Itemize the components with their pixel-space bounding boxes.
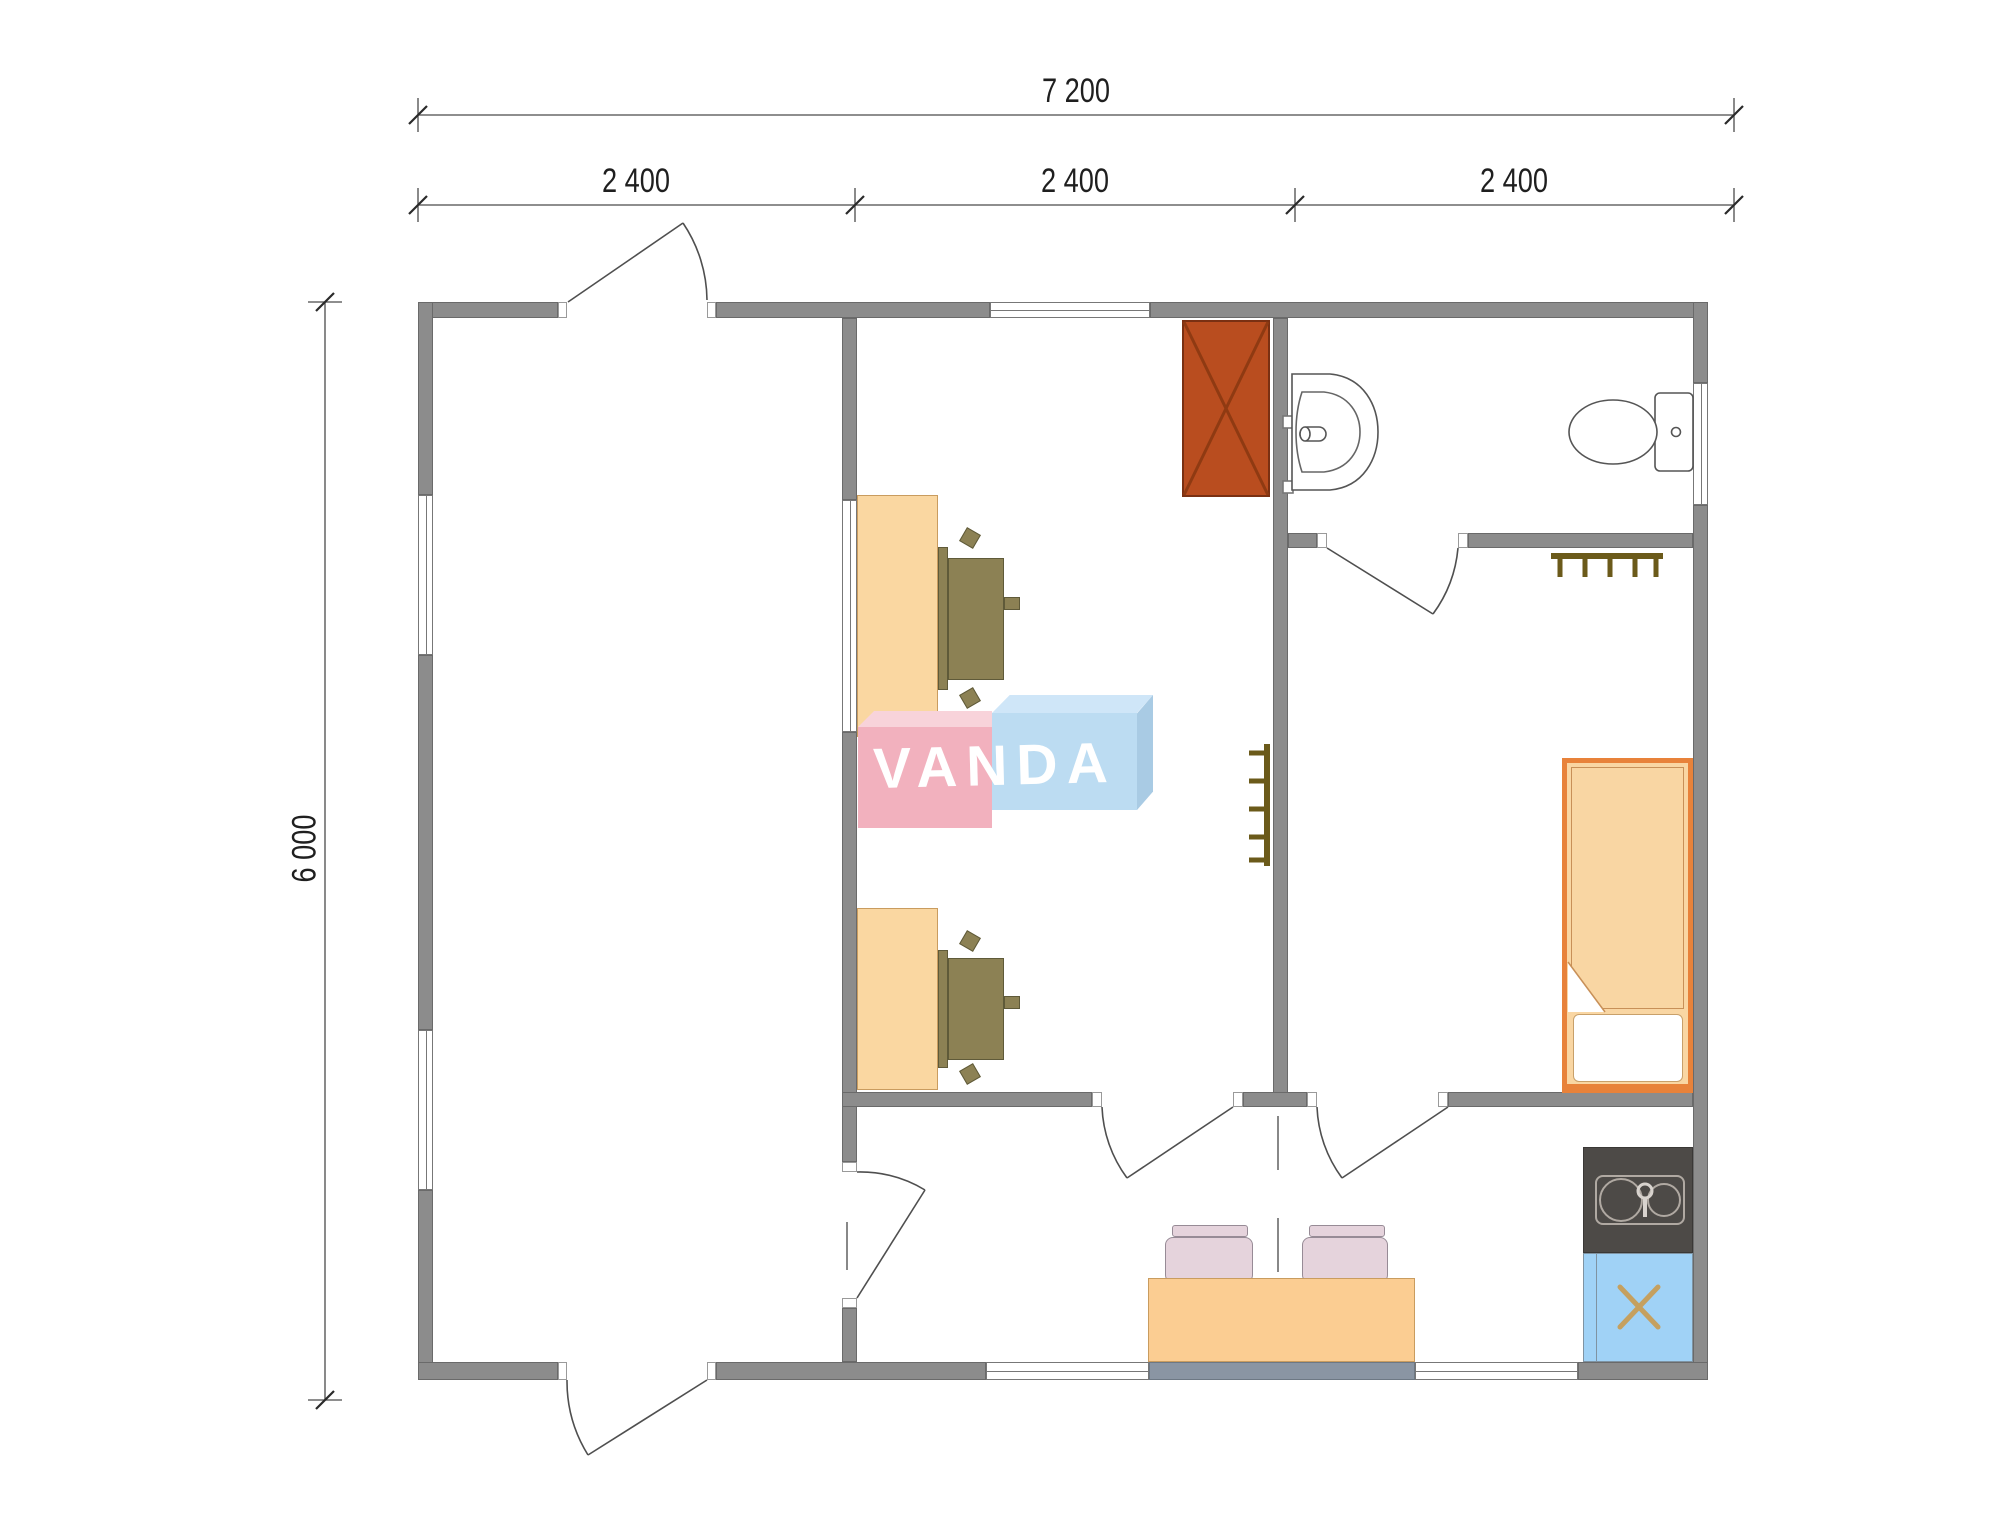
opening-center-lines xyxy=(847,1116,1278,1272)
dimension-lines xyxy=(308,98,1734,1400)
plan-overlay xyxy=(0,0,2000,1524)
dim-segment-1: 2 400 xyxy=(556,162,716,201)
door-leaf xyxy=(1127,1107,1233,1178)
exterior-door-top xyxy=(568,223,707,302)
door-hall-to-entry xyxy=(857,1172,925,1298)
door-swing-arc xyxy=(1102,1107,1127,1178)
door-leaf xyxy=(857,1190,925,1298)
dim-total-width: 7 200 xyxy=(996,72,1156,111)
exterior-door-bottom xyxy=(567,1380,707,1455)
door-swing-arc xyxy=(683,223,707,300)
door-leaf xyxy=(1327,548,1433,614)
door-leaf xyxy=(588,1380,707,1455)
floor-plan-canvas: VANDA xyxy=(0,0,2000,1524)
wardrobe-cross-icon xyxy=(1184,322,1268,495)
door-office-to-entry xyxy=(1102,1107,1233,1178)
bed-fold-line xyxy=(1568,962,1605,1012)
dim-total-height: 6 000 xyxy=(286,793,325,905)
door-bedroom-to-entry xyxy=(1317,1107,1448,1178)
door-swing-arc xyxy=(1433,548,1458,614)
dim-segment-3: 2 400 xyxy=(1434,162,1594,201)
bathroom-sink-icon xyxy=(1283,374,1378,493)
kitchen-sink-icon xyxy=(1596,1176,1684,1224)
door-leaf xyxy=(1342,1107,1448,1178)
door-leaf xyxy=(568,223,683,302)
door-swing-arc xyxy=(567,1380,588,1455)
hob-cross-icon xyxy=(1620,1287,1658,1327)
toilet-icon xyxy=(1569,393,1693,471)
door-swing-arc xyxy=(1317,1107,1342,1178)
radiator-bedroom xyxy=(1551,556,1663,577)
dimension-ticks xyxy=(316,106,1743,1409)
dim-segment-2: 2 400 xyxy=(995,162,1155,201)
door-bathroom xyxy=(1327,548,1458,614)
door-swing-arc xyxy=(857,1172,925,1190)
radiator-living xyxy=(1249,744,1267,866)
